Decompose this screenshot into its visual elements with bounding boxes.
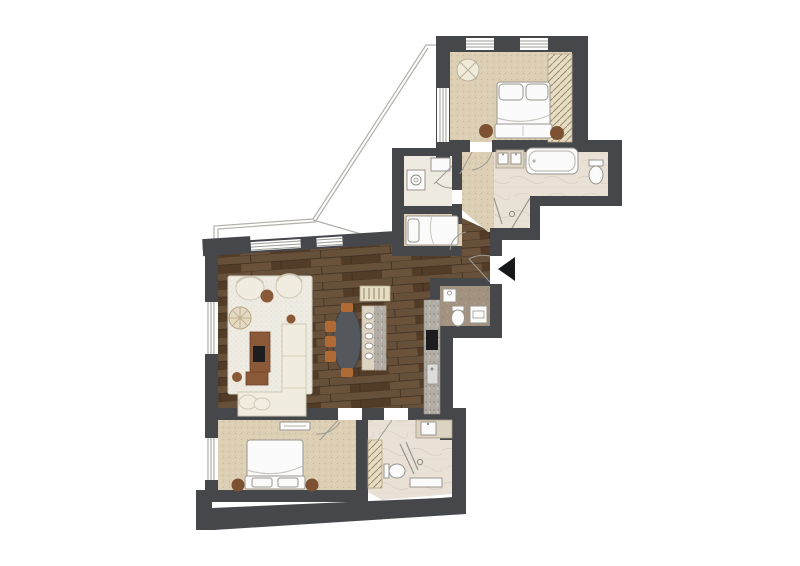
bar-cabinet — [360, 286, 390, 301]
bedroom-2-window-left — [205, 438, 218, 480]
washing-machine — [407, 170, 425, 190]
round-chair — [457, 59, 479, 81]
floor-plan-canvas — [0, 0, 800, 566]
media-console — [246, 332, 270, 385]
dining-chair — [325, 336, 336, 347]
nightstand-2-right — [306, 479, 319, 492]
kitchen-counter — [424, 300, 440, 414]
master-window-2 — [520, 38, 548, 50]
nightstand-2-left — [232, 479, 245, 492]
woven-pouf — [229, 307, 251, 329]
double-bed-2 — [245, 440, 305, 489]
living-window-left — [205, 302, 218, 354]
dining-table — [333, 308, 361, 372]
armchair-1 — [236, 276, 264, 300]
toilet-ensuite — [589, 160, 603, 184]
cooktop — [426, 330, 438, 350]
nightstand-master-right — [550, 126, 564, 140]
master-window-1 — [466, 38, 494, 50]
dining-chair — [325, 321, 336, 332]
double-bed-master — [495, 82, 552, 138]
floor-plan-page — [0, 0, 800, 566]
wc-washbasin — [443, 289, 456, 302]
side-table-2 — [287, 315, 296, 324]
side-table-3 — [232, 372, 242, 382]
dining-chair — [341, 368, 353, 377]
dresser — [280, 422, 310, 430]
bath2-vanity — [416, 420, 452, 438]
armchair-2 — [276, 274, 302, 298]
tv — [253, 346, 265, 362]
shower-tray — [431, 158, 450, 171]
nightstand-master-left — [479, 124, 493, 138]
washer-dryer — [470, 306, 487, 323]
kitchen-sink — [427, 364, 438, 384]
master-window-left — [437, 88, 449, 142]
wc-toilet — [452, 306, 465, 326]
small-bedroom — [406, 216, 466, 250]
side-table-1 — [261, 290, 274, 303]
kitchen-island — [362, 306, 386, 370]
shower-bench — [410, 478, 442, 487]
linen-closet — [368, 440, 382, 488]
bath2-toilet — [384, 464, 405, 478]
dining-chair — [325, 351, 336, 362]
double-vanity — [496, 150, 524, 168]
single-bed — [406, 216, 458, 245]
living-room — [228, 274, 312, 416]
bathtub — [526, 148, 578, 174]
corridor-floor — [462, 152, 496, 232]
dining-chair — [341, 303, 353, 312]
